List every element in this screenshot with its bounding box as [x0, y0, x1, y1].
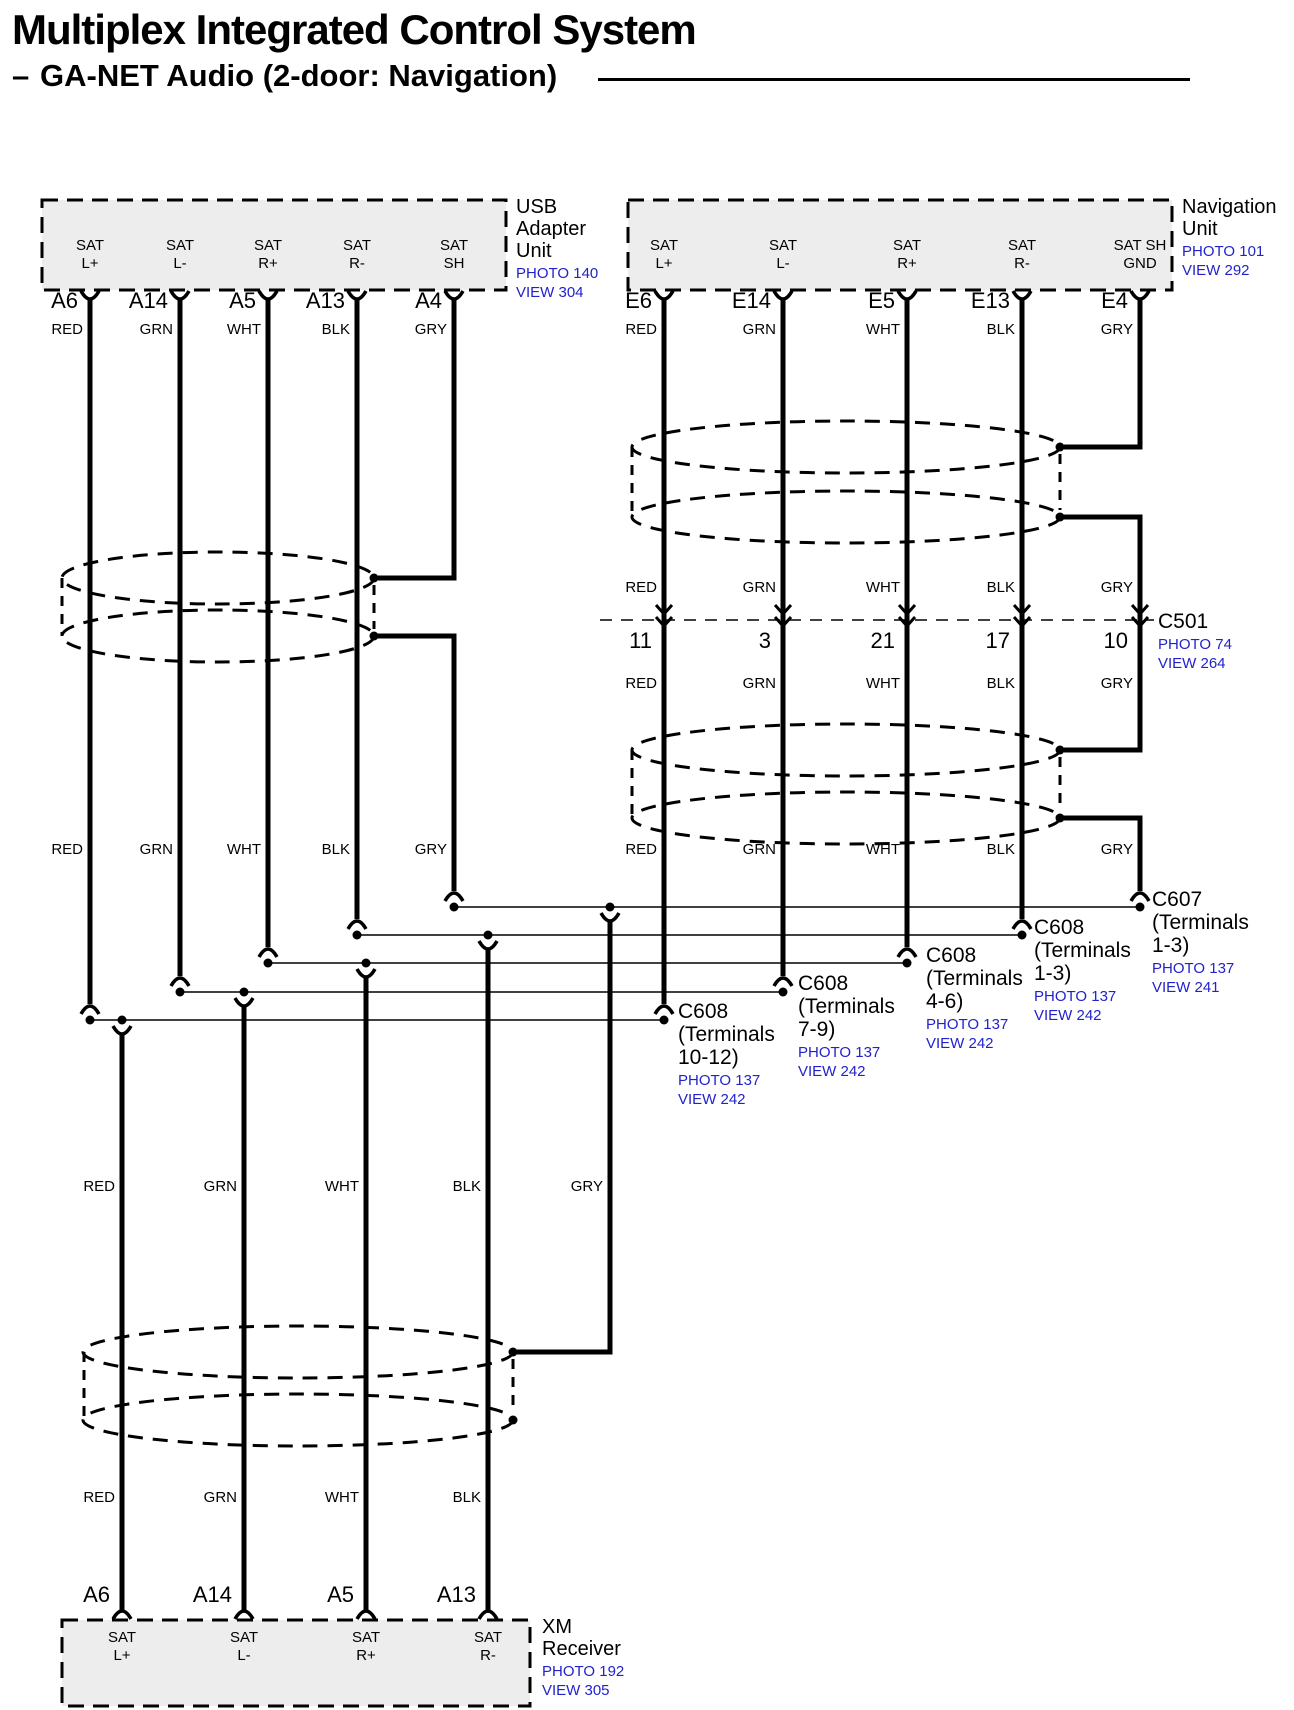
- unit-connector-name: C608: [926, 944, 976, 967]
- view-ref[interactable]: VIEW 242: [798, 1062, 866, 1081]
- terminal-label: SAT: [474, 1630, 502, 1647]
- terminal-label: SAT: [230, 1630, 258, 1647]
- wire-color-label: GRN: [743, 842, 776, 858]
- subtitle-dash: –: [12, 58, 29, 94]
- pin-label: 10: [1104, 630, 1128, 652]
- wire-color-label: GRN: [140, 322, 173, 338]
- connector-terminals-line: (Terminals: [798, 995, 895, 1018]
- view-ref[interactable]: VIEW 242: [926, 1034, 994, 1053]
- pin-label: 17: [986, 630, 1010, 652]
- terminal-label: SAT: [440, 238, 468, 255]
- wire-color-label: BLK: [453, 1179, 481, 1195]
- wire-color-label: GRN: [743, 676, 776, 692]
- wire-color-label: RED: [83, 1490, 115, 1506]
- wire-color-label: GRN: [743, 580, 776, 596]
- terminal-label: SAT: [343, 238, 371, 255]
- terminal-label: SAT: [166, 238, 194, 255]
- wire-color-label: BLK: [987, 842, 1015, 858]
- wire-color-label: BLK: [322, 842, 350, 858]
- wire-color-label: BLK: [987, 580, 1015, 596]
- photo-ref[interactable]: PHOTO 137: [1034, 987, 1116, 1006]
- terminal-label: SAT: [650, 238, 678, 255]
- unit-connector-name: Adapter: [516, 218, 586, 240]
- terminal-label: SAT: [76, 238, 104, 255]
- wire-color-label: GRY: [571, 1179, 603, 1195]
- terminal-label: L+: [655, 256, 672, 273]
- wire-color-label: BLK: [322, 322, 350, 338]
- photo-ref[interactable]: PHOTO 101: [1182, 242, 1264, 261]
- connector-terminals-line: 10-12): [678, 1046, 739, 1069]
- connector-terminals-line: (Terminals: [926, 967, 1023, 990]
- unit-connector-name: C608: [678, 1000, 728, 1023]
- connector-terminals-line: 1-3): [1034, 962, 1071, 985]
- wire-color-label: WHT: [866, 322, 900, 338]
- terminal-label: SAT: [352, 1630, 380, 1647]
- unit-connector-name: C501: [1158, 610, 1208, 633]
- pin-label: 21: [871, 630, 895, 652]
- terminal-label: SAT: [769, 238, 797, 255]
- terminal-label: R-: [1014, 256, 1030, 273]
- terminal-label: L+: [81, 256, 98, 273]
- unit-boxes: [42, 200, 1172, 1706]
- connector-terminals-line: 7-9): [798, 1018, 835, 1041]
- pin-label: E4: [1101, 290, 1128, 312]
- view-ref[interactable]: VIEW 242: [1034, 1006, 1102, 1025]
- unit-connector-name: Unit: [1182, 218, 1218, 240]
- c501-connector-line: [600, 605, 1154, 626]
- wire-color-label: WHT: [325, 1490, 359, 1506]
- view-ref[interactable]: VIEW 264: [1158, 654, 1226, 673]
- terminal-label: SAT: [1008, 238, 1036, 255]
- pin-label: A14: [193, 1584, 232, 1606]
- terminal-label: GND: [1123, 256, 1156, 273]
- wire-color-label: RED: [625, 322, 657, 338]
- wire-color-label: GRY: [415, 322, 447, 338]
- pin-label: E5: [868, 290, 895, 312]
- wires: [90, 300, 1140, 1610]
- terminal-label: L-: [173, 256, 186, 273]
- pin-label: A6: [83, 1584, 110, 1606]
- photo-ref[interactable]: PHOTO 137: [798, 1043, 880, 1062]
- pin-label: 11: [629, 630, 652, 652]
- pin-label: A5: [229, 290, 256, 312]
- terminal-label: R+: [897, 256, 917, 273]
- page-subtitle: GA-NET Audio (2-door: Navigation): [40, 58, 557, 94]
- unit-connector-name: USB: [516, 196, 557, 218]
- terminal-label: R-: [349, 256, 365, 273]
- terminal-forks: [81, 291, 1149, 1619]
- pin-label: A13: [306, 290, 345, 312]
- wire-color-label: GRN: [204, 1179, 237, 1195]
- terminal-label: R-: [480, 1648, 496, 1665]
- pin-label: E13: [971, 290, 1010, 312]
- wire-color-label: GRY: [415, 842, 447, 858]
- view-ref[interactable]: VIEW 241: [1152, 978, 1220, 997]
- shield-ellipses: [62, 421, 1060, 1446]
- wire-color-label: WHT: [866, 842, 900, 858]
- connector-terminals-line: 1-3): [1152, 934, 1189, 957]
- pin-label: A4: [415, 290, 442, 312]
- wire-color-label: GRY: [1101, 580, 1133, 596]
- terminal-label: R+: [356, 1648, 376, 1665]
- view-ref[interactable]: VIEW 305: [542, 1681, 610, 1700]
- wire-color-label: RED: [625, 580, 657, 596]
- photo-ref[interactable]: PHOTO 137: [926, 1015, 1008, 1034]
- connector-terminals-line: (Terminals: [678, 1023, 775, 1046]
- pin-label: A5: [327, 1584, 354, 1606]
- unit-connector-name: C608: [1034, 916, 1084, 939]
- terminal-label: SAT: [108, 1630, 136, 1647]
- view-ref[interactable]: VIEW 242: [678, 1090, 746, 1109]
- wire-color-label: RED: [625, 842, 657, 858]
- photo-ref[interactable]: PHOTO 137: [1152, 959, 1234, 978]
- unit-connector-name: Unit: [516, 240, 552, 262]
- wiring-diagram-page: Multiplex Integrated Control System – GA…: [0, 0, 1294, 1710]
- connector-terminals-line: (Terminals: [1034, 939, 1131, 962]
- terminal-label: L-: [237, 1648, 250, 1665]
- wire-color-label: BLK: [987, 676, 1015, 692]
- photo-ref[interactable]: PHOTO 74: [1158, 635, 1232, 654]
- wire-color-label: WHT: [227, 322, 261, 338]
- terminal-label: SAT: [893, 238, 921, 255]
- connector-terminals-line: (Terminals: [1152, 911, 1249, 934]
- terminal-label: L-: [776, 256, 789, 273]
- unit-connector-name: Receiver: [542, 1638, 621, 1660]
- subtitle-rule: [598, 78, 1190, 81]
- wire-color-label: GRY: [1101, 676, 1133, 692]
- connector-terminals-line: 4-6): [926, 990, 963, 1013]
- terminal-label: SAT: [254, 238, 282, 255]
- pin-label: 3: [759, 630, 771, 652]
- terminal-label: SAT SH: [1114, 238, 1167, 255]
- wire-color-label: GRY: [1101, 322, 1133, 338]
- wire-color-label: WHT: [866, 580, 900, 596]
- unit-connector-name: C608: [798, 972, 848, 995]
- wire-color-label: GRN: [204, 1490, 237, 1506]
- wire-color-label: RED: [625, 676, 657, 692]
- wire-color-label: RED: [51, 842, 83, 858]
- terminal-label: R+: [258, 256, 278, 273]
- page-title: Multiplex Integrated Control System: [12, 6, 696, 54]
- terminal-label: SH: [444, 256, 465, 273]
- wire-color-label: RED: [51, 322, 83, 338]
- wire-color-label: GRY: [1101, 842, 1133, 858]
- wire-color-label: GRN: [140, 842, 173, 858]
- pin-label: A6: [51, 290, 78, 312]
- pin-label: A13: [437, 1584, 476, 1606]
- photo-ref[interactable]: PHOTO 140: [516, 264, 598, 283]
- pin-label: A14: [129, 290, 168, 312]
- photo-ref[interactable]: PHOTO 137: [678, 1071, 760, 1090]
- unit-connector-name: XM: [542, 1616, 572, 1638]
- wire-color-label: BLK: [453, 1490, 481, 1506]
- wire-color-label: WHT: [325, 1179, 359, 1195]
- terminal-label: L+: [113, 1648, 130, 1665]
- view-ref[interactable]: VIEW 304: [516, 283, 584, 302]
- wire-color-label: WHT: [227, 842, 261, 858]
- wire-color-label: BLK: [987, 322, 1015, 338]
- wire-color-label: WHT: [866, 676, 900, 692]
- pin-label: E14: [732, 290, 771, 312]
- wire-color-label: GRN: [743, 322, 776, 338]
- view-ref[interactable]: VIEW 292: [1182, 261, 1250, 280]
- wire-color-label: RED: [83, 1179, 115, 1195]
- pin-label: E6: [625, 290, 652, 312]
- photo-ref[interactable]: PHOTO 192: [542, 1662, 624, 1681]
- unit-connector-name: Navigation: [1182, 196, 1277, 218]
- unit-connector-name: C607: [1152, 888, 1202, 911]
